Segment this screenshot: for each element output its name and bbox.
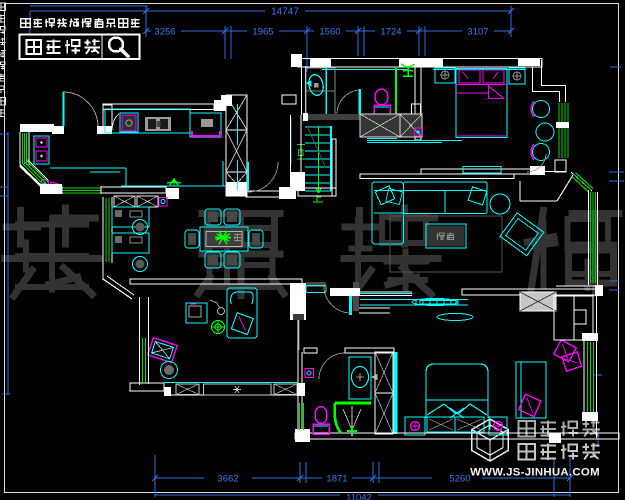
svg-text:3256: 3256 [154,27,175,38]
svg-text:14747: 14747 [271,7,299,18]
svg-text:1871: 1871 [326,474,347,485]
svg-text:3662: 3662 [217,474,238,485]
svg-text:WWW.JS-JINHUA.COM: WWW.JS-JINHUA.COM [470,467,600,479]
svg-text:3107: 3107 [467,27,488,38]
svg-text:5260: 5260 [449,474,470,485]
svg-text:11042: 11042 [346,493,372,500]
svg-text:1724: 1724 [380,27,401,38]
svg-text:1560: 1560 [319,27,340,38]
svg-text:1965: 1965 [252,27,273,38]
